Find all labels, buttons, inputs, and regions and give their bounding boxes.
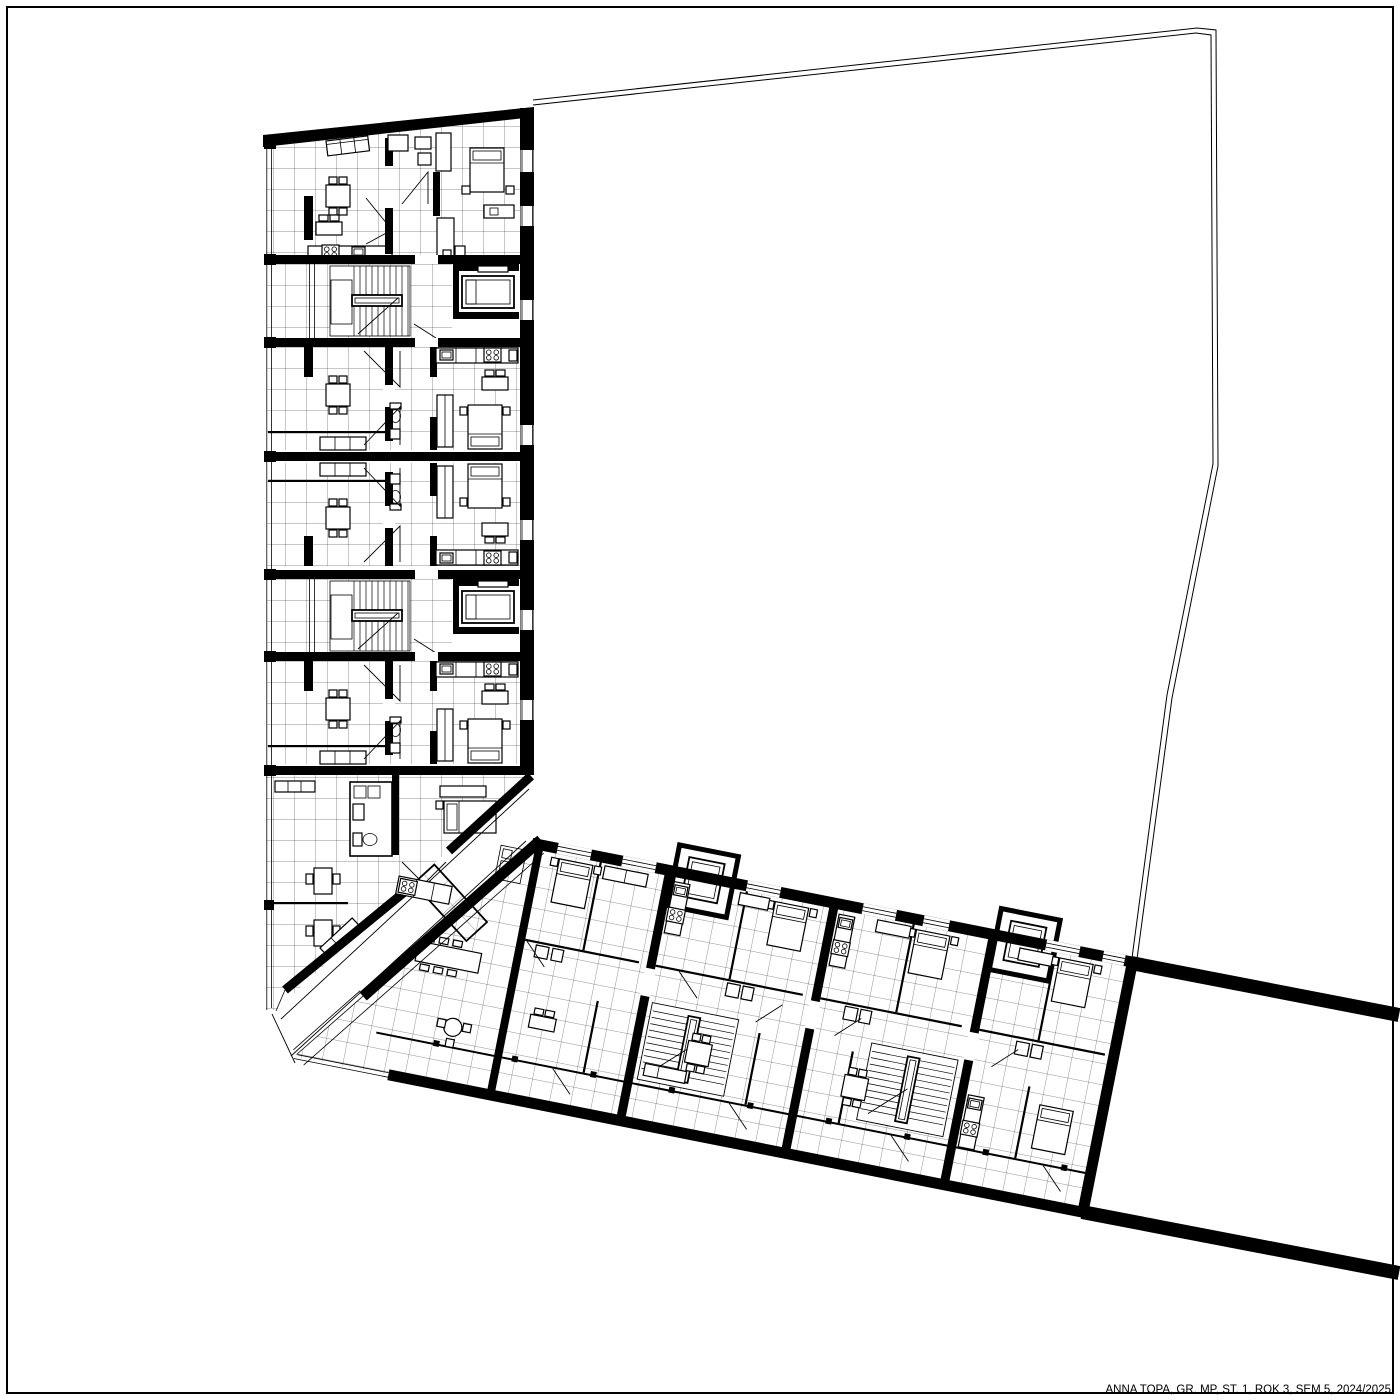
cooktop-icon	[398, 878, 417, 895]
bed	[470, 148, 504, 192]
toilet-icon	[353, 833, 362, 846]
boundary-walls	[1082, 963, 1399, 1273]
site-boundary	[533, 28, 1218, 959]
title-text: ANNA TOPA, GR. MP, ST. 1, ROK 3, SEM 5, …	[1105, 1384, 1391, 1396]
apartment-module	[267, 661, 529, 764]
kitchen-sink	[673, 885, 688, 897]
floor-plan-canvas: ANNA TOPA, GR. MP, ST. 1, ROK 3, SEM 5, …	[0, 0, 1400, 1400]
apartment-module	[267, 463, 529, 566]
kitchen-sink	[967, 1098, 982, 1110]
staircase	[857, 1043, 958, 1137]
cooktop-icon	[831, 940, 850, 957]
cooktop-icon	[960, 1120, 979, 1137]
sheet-border	[7, 7, 1393, 1393]
cooktop-icon	[666, 907, 685, 924]
kitchen-sink	[838, 917, 853, 929]
drawing-sheet: ANNA TOPA, GR. MP, ST. 1, ROK 3, SEM 5, …	[0, 0, 1400, 1400]
staircase-core	[267, 264, 519, 338]
staircase-core	[267, 579, 519, 653]
apartment-module	[267, 347, 529, 450]
